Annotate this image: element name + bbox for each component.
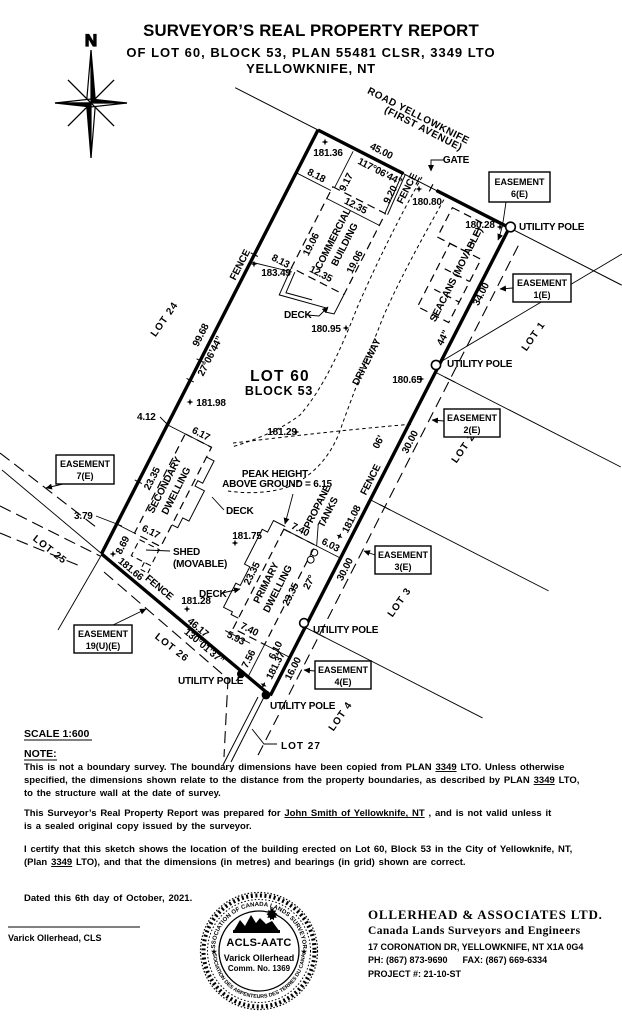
svg-text:180.65: 180.65 <box>392 375 422 386</box>
svg-text:LOT 24: LOT 24 <box>149 300 181 339</box>
svg-text:EASEMENT: EASEMENT <box>318 665 369 675</box>
svg-text:16.00: 16.00 <box>283 655 304 682</box>
svg-text:(Plan 3349 LTO), and that the: (Plan 3349 LTO), and that the dimensions… <box>24 857 466 868</box>
svg-text:6.17: 6.17 <box>140 523 162 542</box>
svg-text:7(E): 7(E) <box>76 471 93 481</box>
svg-text:181.29: 181.29 <box>267 427 297 438</box>
svg-text:180.95: 180.95 <box>311 324 341 335</box>
svg-text:LOT 27: LOT 27 <box>281 741 321 752</box>
svg-text:This is not a boundary survey.: This is not a boundary survey. The bound… <box>24 762 564 773</box>
svg-text:LOT 3: LOT 3 <box>386 586 414 620</box>
svg-text:EASEMENT: EASEMENT <box>494 177 545 187</box>
svg-text:6(E): 6(E) <box>511 189 528 199</box>
svg-text:I certify that this sketch sho: I certify that this sketch shows the loc… <box>24 844 572 855</box>
svg-text:EASEMENT: EASEMENT <box>447 413 498 423</box>
svg-text:ACLS-AATC: ACLS-AATC <box>226 937 291 949</box>
svg-text:27°: 27° <box>302 573 318 591</box>
svg-text:to the structure wall at the d: to the structure wall at the date of sur… <box>24 788 221 799</box>
svg-text:is a sealed original copy issu: is a sealed original copy issued by the … <box>24 821 252 832</box>
svg-text:19.06: 19.06 <box>345 249 366 276</box>
svg-text:06’: 06’ <box>371 434 387 451</box>
svg-text:Dated this 6th day of October,: Dated this 6th day of October, 2021. <box>24 893 192 904</box>
svg-text:BLOCK 53: BLOCK 53 <box>245 384 313 398</box>
svg-text:6.17: 6.17 <box>190 425 212 444</box>
svg-text:8.69: 8.69 <box>114 534 133 556</box>
svg-text:2(E): 2(E) <box>463 425 480 435</box>
svg-text:OF LOT 60, BLOCK 53, PLAN 5548: OF LOT 60, BLOCK 53, PLAN 55481 CLSR, 33… <box>126 45 495 60</box>
svg-text:PROJECT #: 21-10-ST: PROJECT #: 21-10-ST <box>368 969 462 979</box>
svg-text:181.28: 181.28 <box>181 596 211 607</box>
svg-text:EASEMENT: EASEMENT <box>378 550 429 560</box>
svg-text:DRIVEWAY: DRIVEWAY <box>351 337 384 388</box>
svg-text:ABOVE GROUND = 6.15: ABOVE GROUND = 6.15 <box>222 479 332 490</box>
svg-text:OLLERHEAD & ASSOCIATES LTD.: OLLERHEAD & ASSOCIATES LTD. <box>368 907 603 922</box>
svg-text:SHED: SHED <box>173 547 200 558</box>
svg-text:Varick Ollerhead, CLS: Varick Ollerhead, CLS <box>8 933 102 943</box>
svg-text:LOT 1: LOT 1 <box>520 320 548 354</box>
svg-text:★: ★ <box>301 948 308 956</box>
svg-text:NOTE:: NOTE: <box>24 748 57 760</box>
svg-text:17 CORONATION DR, YELLOWKNIFE,: 17 CORONATION DR, YELLOWKNIFE, NT X1A 0G… <box>368 942 583 952</box>
svg-text:N: N <box>85 31 97 50</box>
svg-text:This Surveyor’s Real Property: This Surveyor’s Real Property Report was… <box>24 808 552 819</box>
svg-text:EASEMENT: EASEMENT <box>517 278 568 288</box>
svg-text:UTILITY POLE: UTILITY POLE <box>178 676 244 687</box>
svg-text:3(E): 3(E) <box>394 562 411 572</box>
svg-text:6.03: 6.03 <box>319 536 341 555</box>
svg-text:★: ★ <box>211 948 218 956</box>
svg-text:UTILITY POLE: UTILITY POLE <box>270 701 336 712</box>
svg-text:SEACANS (MOVABLE): SEACANS (MOVABLE) <box>428 226 485 324</box>
svg-text:4(E): 4(E) <box>334 677 351 687</box>
svg-text:19(U)(E): 19(U)(E) <box>86 641 121 651</box>
svg-text:LOT 25: LOT 25 <box>30 533 68 566</box>
svg-text:9.17: 9.17 <box>338 171 357 193</box>
svg-text:LOT 60: LOT 60 <box>250 368 310 385</box>
svg-text:180.28: 180.28 <box>465 220 495 231</box>
svg-text:(MOVABLE): (MOVABLE) <box>173 559 227 570</box>
svg-text:YELLOWKNIFE, NT: YELLOWKNIFE, NT <box>246 61 376 76</box>
svg-text:181.36: 181.36 <box>313 148 343 159</box>
svg-text:4.12: 4.12 <box>137 412 156 423</box>
svg-text:Canada Lands Surveyors and Eng: Canada Lands Surveyors and Engineers <box>368 925 581 937</box>
svg-text:Varick Ollerhead: Varick Ollerhead <box>224 953 295 963</box>
svg-text:specified, the dimensions show: specified, the dimensions shown relate t… <box>24 775 579 786</box>
svg-text:180.80: 180.80 <box>412 197 442 208</box>
svg-text:SCALE 1:600: SCALE 1:600 <box>24 728 90 740</box>
svg-text:183.49: 183.49 <box>261 268 291 279</box>
svg-text:7.56: 7.56 <box>240 648 259 670</box>
svg-text:SURVEYOR’S REAL PROPERTY REPOR: SURVEYOR’S REAL PROPERTY REPORT <box>143 21 479 40</box>
svg-text:EASEMENT: EASEMENT <box>78 629 129 639</box>
svg-text:DECK: DECK <box>226 506 255 517</box>
svg-text:181.75: 181.75 <box>232 531 262 542</box>
svg-text:GATE: GATE <box>443 155 470 166</box>
svg-text:UTILITY POLE: UTILITY POLE <box>447 359 513 370</box>
svg-text:181.98: 181.98 <box>196 398 226 409</box>
svg-text:EASEMENT: EASEMENT <box>60 459 111 469</box>
svg-text:UTILITY POLE: UTILITY POLE <box>313 625 379 636</box>
svg-text:UTILITY POLE: UTILITY POLE <box>519 222 585 233</box>
svg-text:Comm. No. 1369: Comm. No. 1369 <box>228 964 291 973</box>
svg-text:PH: (867) 873-9690 FAX: (: PH: (867) 873-9690 FAX: (867) 669-6334 <box>368 955 547 965</box>
svg-text:FENCE: FENCE <box>143 573 176 603</box>
svg-text:1(E): 1(E) <box>533 290 550 300</box>
svg-text:ROAD YELLOWKNIFE: ROAD YELLOWKNIFE <box>365 86 471 147</box>
svg-text:3.79: 3.79 <box>74 511 93 522</box>
